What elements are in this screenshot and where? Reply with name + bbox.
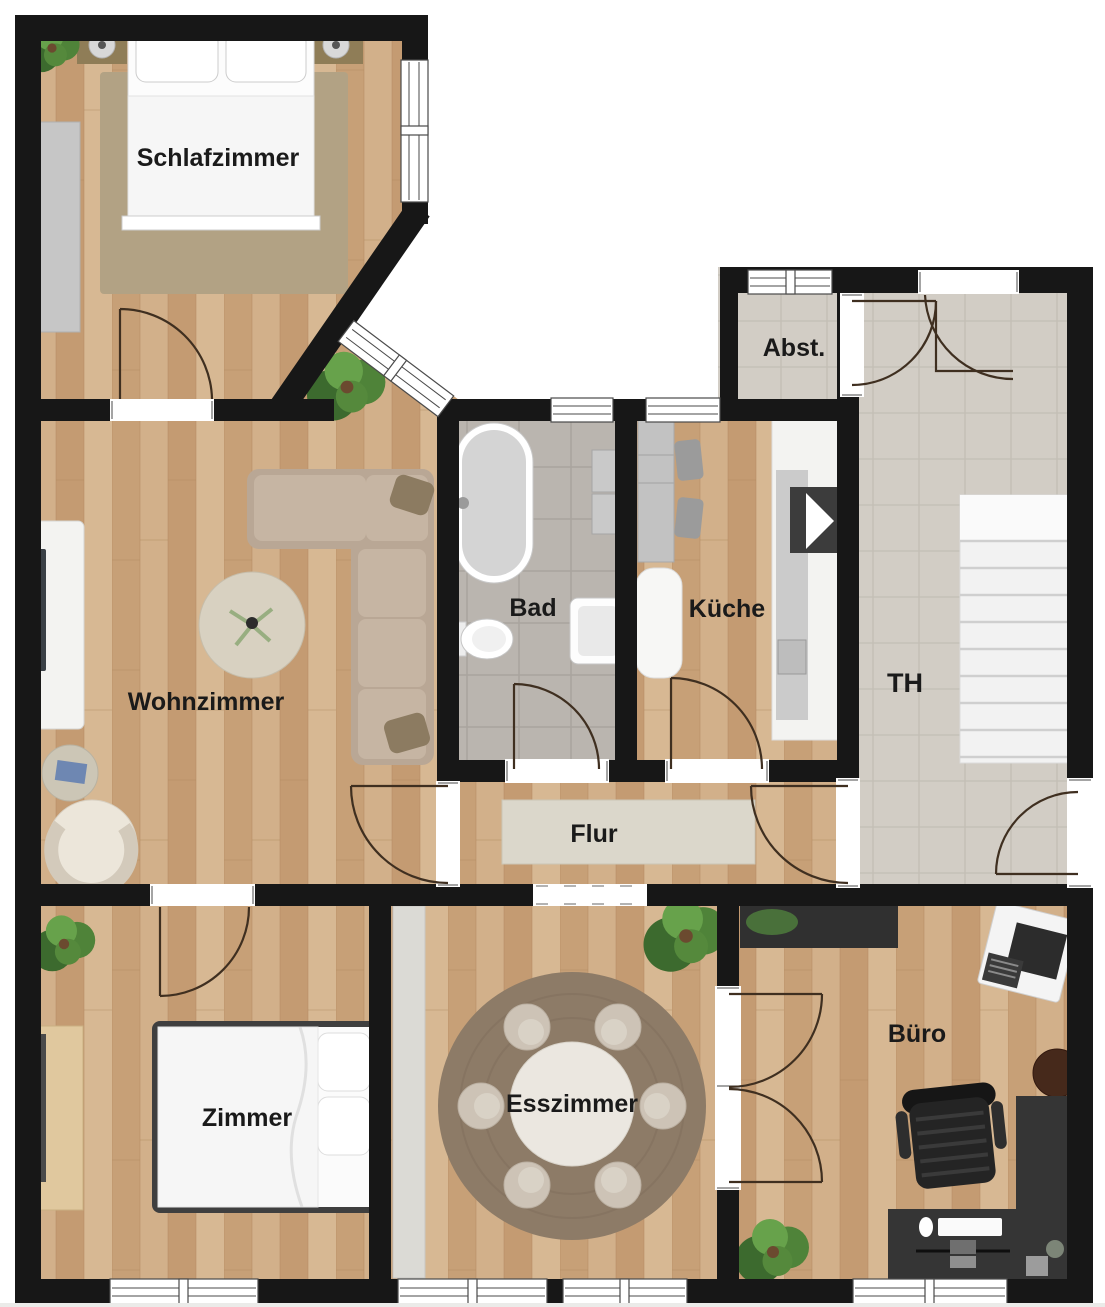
room-label-esszimmer: Esszimmer [506,1090,638,1118]
door-zimmer [150,884,255,906]
kitchen-table [636,568,682,678]
dining-chair [640,1083,686,1129]
double-door-esszimmer-buero [715,986,741,1190]
book [55,760,87,784]
door-abstellraum [840,293,864,397]
page-edge [0,1303,1105,1307]
door-schlafzimmer [110,399,214,421]
room-label-zimmer: Zimmer [202,1104,293,1132]
double-bed [122,26,320,230]
room-label-kueche: Küche [689,595,766,623]
office-shelf [740,902,898,948]
room-flur: Flur [502,800,755,864]
room-abstellraum: Abst. [763,334,826,362]
bathtub [455,423,533,583]
room-label-flur: Flur [570,820,617,848]
room-label-bad: Bad [509,594,556,622]
window-abstellraum [748,270,832,294]
door-flur-treppenhaus [836,778,860,888]
staircase [960,495,1068,763]
window-zimmer [110,1279,258,1305]
dining-chair [504,1004,550,1050]
window-schlafzimmer-right [401,60,428,202]
toilet [452,619,513,659]
mouse-icon [919,1217,933,1237]
stove-icon [790,487,838,553]
kitchen-cabinet [638,420,674,562]
window-esszimmer-right [563,1279,687,1305]
coffee-table [199,572,305,678]
room-label-buero: Büro [888,1020,946,1048]
door-treppenhaus-right [1067,778,1093,888]
armchair [47,800,137,890]
window-kueche [646,398,720,422]
room-label-wohnzimmer: Wohnzimmer [128,688,285,716]
window-buero [853,1279,1007,1305]
door-kueche [665,759,769,783]
side-table [42,745,98,801]
window-bad [551,398,613,422]
room-label-schlafzimmer: Schlafzimmer [137,144,300,172]
kitchen-sink [778,640,806,674]
dining-chair [595,1004,641,1050]
dining-chair [458,1083,504,1129]
dining-chair [504,1162,550,1208]
dining-chair [595,1162,641,1208]
floor-plan: Schlafzimmer [0,0,1105,1307]
door-bad [505,759,609,783]
door-wohnzimmer-flur [436,781,460,887]
desk-plant-icon [1046,1240,1064,1258]
sideboard [393,906,425,1278]
kitchen-counter [772,420,838,740]
room-label-abstellraum: Abst. [763,334,826,362]
hall-rug [502,800,755,864]
opening-flur-esszimmer [533,884,647,906]
kitchen-chair [674,497,704,539]
kitchen-chair [674,439,704,481]
room-label-treppenhaus: TH [887,668,923,698]
plant-icon [746,909,798,935]
door-building-entrance [918,270,1019,294]
keyboard-icon [938,1218,1002,1236]
window-esszimmer-left [398,1279,547,1305]
floor-plan-canvas: Schlafzimmer [0,0,1105,1307]
